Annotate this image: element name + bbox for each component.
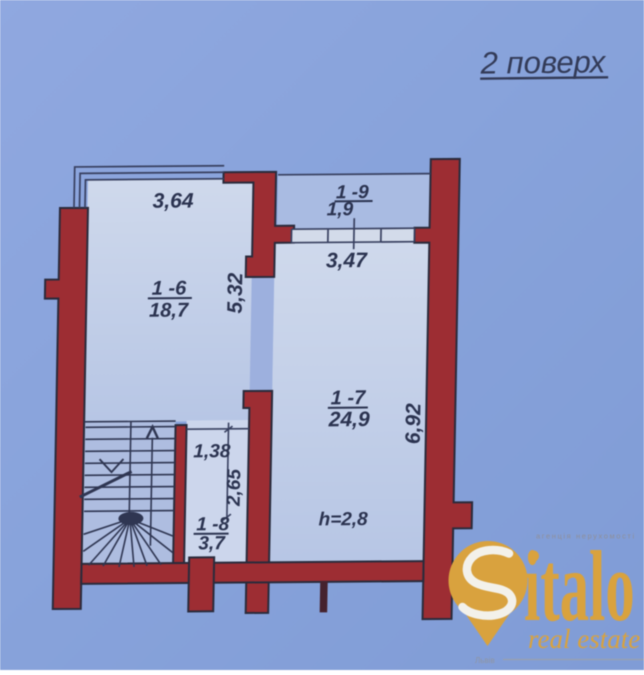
svg-text:18,7: 18,7 bbox=[149, 300, 189, 322]
svg-text:3,47: 3,47 bbox=[326, 249, 369, 272]
svg-text:Львів: Львів bbox=[475, 656, 495, 665]
svg-text:6,92: 6,92 bbox=[402, 403, 426, 444]
svg-text:2 поверх: 2 поверх bbox=[480, 44, 607, 80]
svg-text:real estate: real estate bbox=[528, 624, 640, 654]
svg-text:3,64: 3,64 bbox=[152, 189, 194, 212]
svg-text:1,9: 1,9 bbox=[327, 199, 354, 220]
svg-text:1 -7: 1 -7 bbox=[331, 387, 367, 409]
svg-text:h=2,8: h=2,8 bbox=[318, 509, 368, 530]
svg-text:1 -6: 1 -6 bbox=[152, 278, 188, 300]
svg-text:5,32: 5,32 bbox=[224, 272, 248, 313]
svg-text:3,7: 3,7 bbox=[198, 533, 226, 554]
svg-text:1,38: 1,38 bbox=[193, 441, 231, 462]
svg-text:2,65: 2,65 bbox=[224, 469, 246, 508]
svg-text:24,9: 24,9 bbox=[328, 408, 371, 431]
